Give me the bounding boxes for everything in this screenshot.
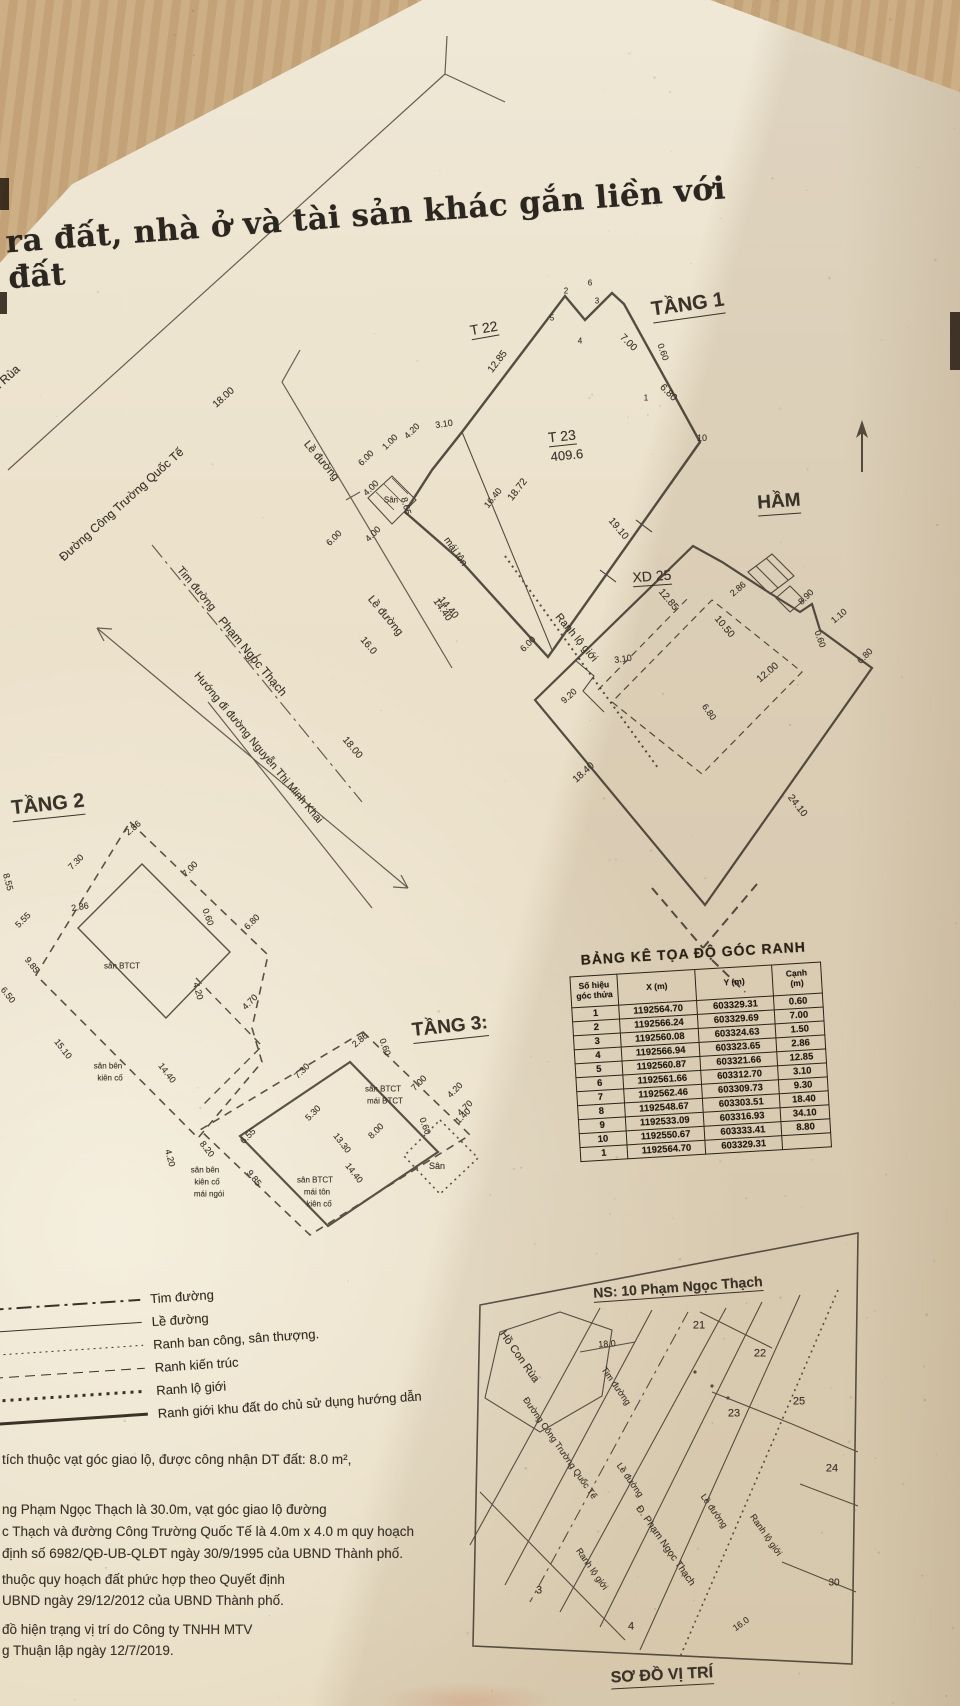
legend-label: Tim đường xyxy=(150,1287,215,1306)
tang1-plan-label: T 23 xyxy=(547,427,577,448)
basement-plan-label: HẦM xyxy=(757,490,802,517)
col-header-edge: Cạnh (m) xyxy=(771,962,822,996)
coordinate-table: Số hiệu góc thửa X (m) Y (m) Cạnh (m) 11… xyxy=(569,962,832,1163)
tang1-plan-label: 6 xyxy=(588,278,592,287)
col-header-corner-id: Số hiệu góc thửa xyxy=(570,974,619,1008)
coordinate-table-body: 11192564.70603329.310.6021192566.2460332… xyxy=(572,993,832,1162)
map-label: 24 xyxy=(826,1463,838,1476)
tang3-plan-label: mái BTCT xyxy=(367,1096,403,1105)
tang2-plan-label: sân BTCT xyxy=(104,961,140,970)
tang3-plan-label: sân BTCT xyxy=(297,1175,333,1184)
tang1-plan-label: 5 xyxy=(550,313,554,322)
legend-label: Lề đường xyxy=(151,1310,209,1329)
map-label: 3 xyxy=(536,1585,542,1598)
dotted-line-sample xyxy=(0,1345,143,1357)
tang3-plan-label: kiên cố xyxy=(306,1199,331,1208)
tang1-plan-label: 1 xyxy=(644,393,648,402)
tang3-plan-label: mái ngói xyxy=(194,1189,224,1198)
note-line: thuộc quy hoạch đất phức hợp theo Quyết … xyxy=(2,1572,285,1588)
basement-plan-label: XD 25 xyxy=(632,567,672,588)
tang1-plan-label: 3 xyxy=(595,296,599,305)
col-header-y: Y (m) xyxy=(695,965,773,1000)
bold-dotted-line-sample xyxy=(0,1390,146,1403)
map-label: 25 xyxy=(793,1396,805,1409)
coordinate-table-section: BẢNG KÊ TỌA ĐỘ GÓC RANH Số hiệu góc thửa… xyxy=(560,937,838,1162)
dashed-line-sample xyxy=(0,1367,145,1379)
note-line: tích thuộc vạt góc giao lộ, được công nh… xyxy=(2,1452,351,1468)
legend-label: Ranh kiến trúc xyxy=(154,1355,239,1376)
tang3-plan-label: Sân xyxy=(429,1161,445,1171)
tang3-plan-label: sân BTCT xyxy=(365,1084,401,1093)
map-label: 21 xyxy=(693,1320,705,1333)
map-label: 30 xyxy=(828,1577,839,1589)
tang1-plan-label: 10 xyxy=(697,433,707,443)
note-line: định số 6982/QĐ-UB-QLĐT ngày 30/9/1995 c… xyxy=(2,1546,403,1562)
dashdot-line-sample xyxy=(0,1298,140,1310)
tang2-plan-label: kiên cố xyxy=(97,1073,122,1082)
map-label: 22 xyxy=(754,1348,766,1361)
tang3-plan-label: sân bên xyxy=(191,1165,219,1174)
tang1-plan-label: 4 xyxy=(578,336,582,345)
tang1-plan-label: 2 xyxy=(564,286,568,295)
solid-line-sample xyxy=(0,1322,142,1334)
tang3-plan-label: mái tôn xyxy=(304,1187,330,1196)
note-line: UBND ngày 29/12/2012 của UBND Thành phố. xyxy=(2,1593,284,1609)
photo-background: ra đất, nhà ở và tài sản khác gắn liền v… xyxy=(0,0,960,1706)
bold-solid-line-sample xyxy=(0,1413,148,1426)
tang2-plan-label: sân bên xyxy=(94,1061,122,1070)
basement-plan-lines xyxy=(535,420,872,905)
map-label: 18.0 xyxy=(598,1338,616,1350)
note-line: ng Phạm Ngọc Thạch là 30.0m, vạt góc gia… xyxy=(2,1502,327,1518)
tang3-plan-label: kiên cố xyxy=(194,1177,219,1186)
coordinate-cell: 1 xyxy=(580,1145,628,1162)
legend-label: Ranh lộ giới xyxy=(156,1378,227,1398)
note-line: g Thuận lập ngày 12/7/2019. xyxy=(2,1643,174,1659)
note-line: đồ hiện trạng vị trí do Công ty TNHH MTV xyxy=(2,1622,252,1638)
note-line: c Thạch và đường Công Trường Quốc Tế là … xyxy=(2,1524,414,1540)
map-label: 23 xyxy=(728,1408,740,1421)
legend-label: Ranh ban công, sân thượng. xyxy=(153,1326,320,1352)
floor-plan-tang1-lines xyxy=(368,293,757,992)
coordinate-cell xyxy=(781,1133,831,1150)
map-label: 4 xyxy=(628,1621,634,1634)
col-header-x: X (m) xyxy=(617,970,697,1006)
tang1-plan-label: Sân xyxy=(384,495,398,504)
